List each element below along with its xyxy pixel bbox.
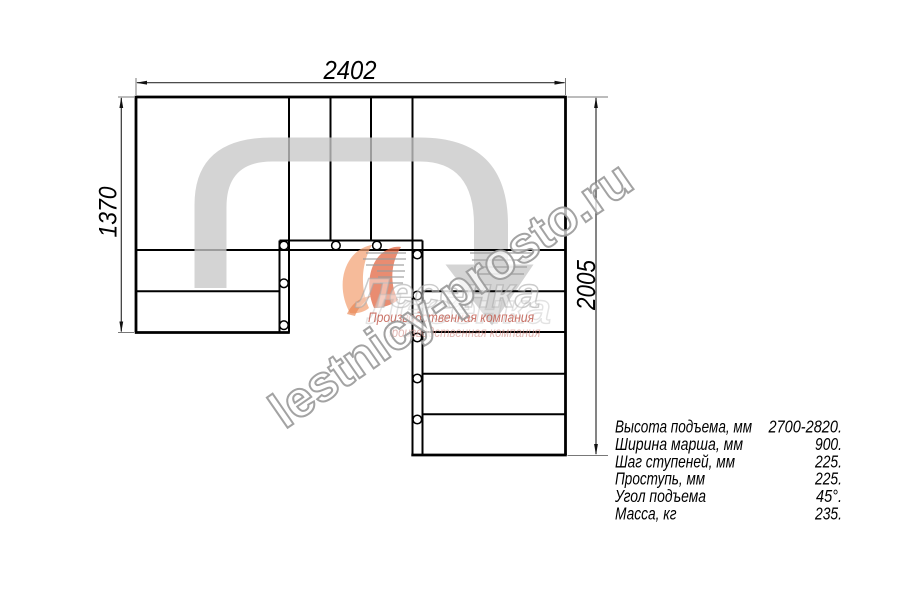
svg-text:2005: 2005 — [571, 260, 601, 311]
svg-text:2402: 2402 — [323, 55, 377, 85]
svg-text:Масса, кг: Масса, кг — [615, 504, 677, 524]
svg-text:235.: 235. — [814, 504, 842, 524]
svg-text:1370: 1370 — [95, 186, 123, 237]
